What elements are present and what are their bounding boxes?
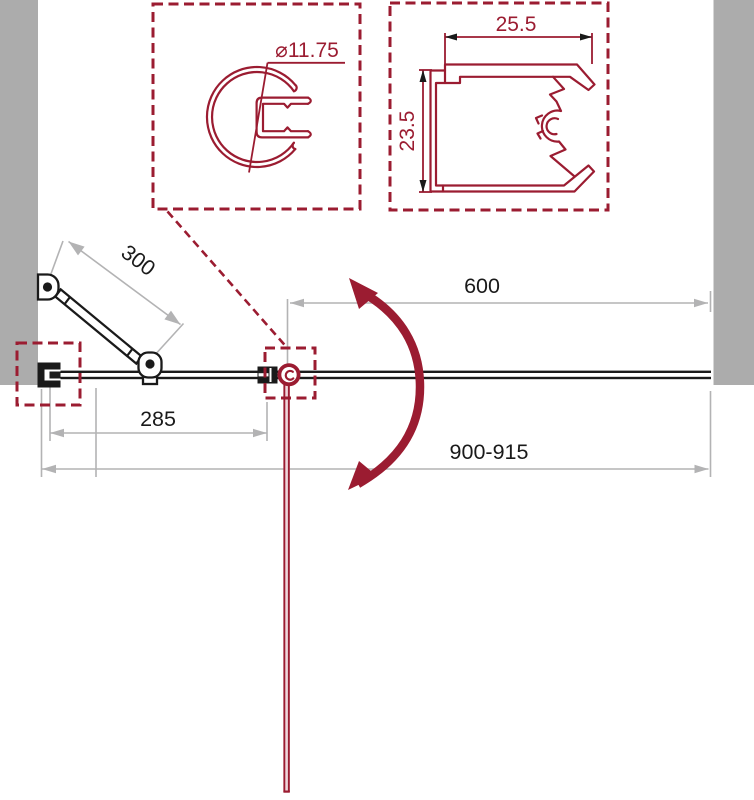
dim-arrow: [42, 465, 56, 473]
dim-fixed-panel: 285: [50, 387, 267, 477]
dim-arrow: [695, 465, 709, 473]
open-door-panel: [283, 383, 289, 793]
right-wall: [714, 0, 754, 385]
door-swing-arrow: [348, 278, 420, 490]
detail-diameter-label: ⌀11.75: [275, 39, 339, 62]
dim-label-fixed-panel: 285: [140, 407, 176, 431]
dim-label-door: 600: [464, 274, 500, 298]
dim-arrow: [50, 429, 64, 437]
dim-arrow: [420, 180, 427, 192]
detail-height-label: 23.5: [396, 111, 419, 152]
drawing-canvas: 300 285 600 900-915: [0, 0, 754, 800]
detail-width-label: 25.5: [496, 13, 537, 36]
dim-arrow: [420, 70, 427, 82]
dim-arrow: [694, 299, 708, 307]
dim-arrow: [445, 34, 457, 41]
dim-label-support-bar: 300: [117, 240, 160, 281]
dim-label-overall: 900-915: [450, 440, 529, 464]
detail-view-knob-profile: ⌀11.75: [153, 4, 360, 209]
dim-arrow: [164, 311, 180, 325]
dim-door: 600: [288, 274, 711, 364]
shower-door-technical-drawing: 300 285 600 900-915: [0, 0, 754, 800]
callout-leader: [168, 212, 287, 347]
wall-mount-screw: [43, 282, 52, 291]
dim-arrow: [580, 34, 592, 41]
walls: [0, 0, 754, 385]
glass-clamp-screw: [145, 359, 154, 368]
hinge-pivot: [279, 365, 298, 384]
detail-view-wall-profile: 25.5 23.5: [390, 3, 608, 210]
dim-arrow: [290, 299, 304, 307]
dim-arrow: [69, 242, 85, 256]
dim-arrow: [253, 429, 267, 437]
left-wall: [0, 0, 38, 385]
wall-profile-bracket: [38, 363, 61, 388]
